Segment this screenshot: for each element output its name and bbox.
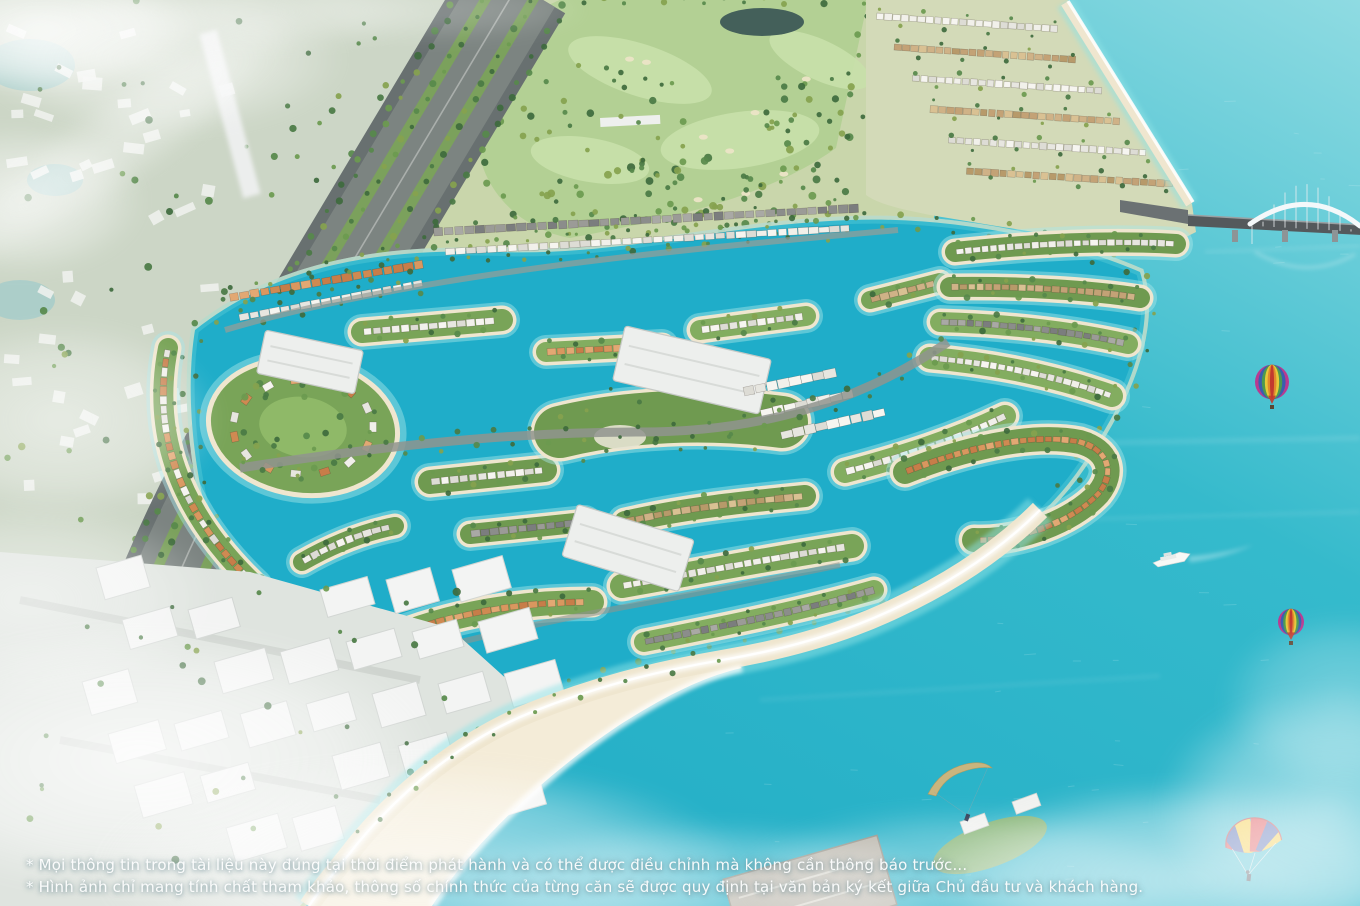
tree (535, 230, 538, 233)
villa-roof (641, 217, 651, 224)
disclaimer-line-2: * Hình ảnh chỉ mang tính chất tham khảo,… (26, 876, 1143, 898)
villa-roof (774, 495, 784, 503)
tree (456, 123, 463, 130)
tree (1048, 250, 1053, 255)
tree (741, 330, 747, 336)
villa-roof (952, 284, 959, 290)
tree (445, 136, 450, 141)
villa-roof (495, 224, 505, 232)
villa-roof (548, 599, 556, 606)
tree (718, 225, 723, 230)
tree (1056, 165, 1060, 169)
tree (742, 414, 746, 418)
villa-roof (382, 326, 391, 333)
tree (303, 432, 310, 439)
tree (665, 185, 670, 190)
villa-roof (967, 320, 974, 326)
villa-roof (1025, 325, 1033, 331)
villa-roof (965, 247, 972, 254)
tree (1126, 247, 1130, 251)
tree (404, 600, 409, 605)
tree (939, 42, 943, 46)
tree (878, 372, 882, 376)
tree (370, 130, 377, 137)
villa-roof (1141, 240, 1148, 246)
tree (609, 387, 613, 391)
tree (1047, 322, 1051, 326)
tree (622, 85, 628, 91)
villa-roof (1049, 173, 1056, 180)
villa-roof (978, 444, 986, 451)
villa-roof (1022, 368, 1030, 376)
tree (926, 446, 932, 452)
tree (192, 320, 198, 326)
tree (407, 269, 413, 275)
villa-roof (1011, 82, 1019, 88)
tree (1037, 135, 1042, 140)
villa-roof (788, 228, 798, 236)
villa-roof (1083, 333, 1090, 339)
villa-roof (663, 633, 673, 641)
tree (301, 394, 307, 400)
tree (806, 96, 813, 103)
villa-roof (1113, 118, 1120, 125)
tree (377, 335, 382, 340)
tree (666, 243, 670, 247)
villa-roof (1008, 22, 1016, 29)
villa-roof (1079, 116, 1087, 122)
tree (680, 118, 687, 125)
villa-roof (1014, 367, 1022, 375)
tree (508, 460, 514, 466)
tree (1028, 47, 1031, 50)
tree (331, 165, 336, 170)
villa-roof (434, 227, 443, 236)
bridge-pier (1282, 230, 1288, 242)
villa-roof (771, 555, 781, 562)
tree (711, 633, 715, 637)
tree (403, 451, 408, 456)
villa-roof (826, 545, 836, 553)
disclaimer: * Mọi thông tin trong tài liệu này đúng … (26, 854, 1143, 898)
villa-roof (1040, 242, 1048, 248)
villa-roof (1007, 243, 1014, 250)
villa-roof (734, 211, 744, 218)
tree (895, 38, 899, 42)
villa-roof (912, 75, 919, 81)
tree (481, 600, 487, 606)
tree (411, 641, 418, 648)
tree (1069, 388, 1075, 394)
villa-roof (997, 110, 1004, 117)
bunker (779, 171, 788, 176)
tree (623, 679, 627, 683)
tree (776, 75, 781, 80)
villa-roof (704, 213, 713, 220)
tree (454, 331, 460, 337)
tree (1152, 312, 1156, 316)
tree (491, 427, 497, 433)
villa-roof (632, 238, 642, 244)
villa-roof (478, 473, 487, 480)
tree (467, 313, 471, 317)
tree (685, 638, 690, 643)
villa-roof (1004, 81, 1011, 87)
tree (655, 173, 660, 178)
tree (781, 83, 787, 89)
tree (748, 176, 754, 182)
villa-roof (725, 563, 734, 571)
tree (770, 397, 775, 402)
tree (1019, 107, 1023, 111)
tree (1020, 318, 1024, 322)
tree (971, 149, 974, 152)
tree (546, 250, 550, 254)
villa-roof (691, 505, 700, 512)
tree (544, 79, 549, 84)
villa-roof (1107, 177, 1114, 183)
tree (970, 256, 976, 262)
tree (1020, 448, 1025, 453)
tree (777, 408, 782, 413)
tree (383, 121, 390, 128)
tree (801, 542, 806, 547)
villa-roof (501, 604, 509, 612)
tree (673, 206, 677, 210)
tree (624, 510, 630, 516)
tree (670, 628, 674, 632)
tree (352, 638, 357, 643)
villa-roof (985, 50, 993, 57)
villa-roof (765, 612, 774, 620)
tree (338, 181, 344, 187)
tree (338, 630, 342, 634)
tree (561, 98, 567, 104)
villa-roof (447, 321, 456, 328)
villa-roof (300, 280, 311, 289)
tree (805, 219, 810, 224)
tree (932, 359, 938, 365)
tree (993, 135, 998, 140)
villa-roof (959, 19, 967, 26)
tree (397, 135, 404, 142)
tree (363, 321, 368, 326)
tree (643, 631, 649, 637)
villa-roof (1018, 52, 1026, 59)
tree (978, 434, 985, 441)
tree (473, 442, 479, 448)
tree (533, 588, 538, 593)
tree (814, 162, 821, 169)
tree (723, 550, 729, 556)
tree (1139, 233, 1143, 237)
tree (1045, 447, 1051, 453)
villa-roof (1020, 438, 1027, 444)
villa-roof (911, 45, 919, 52)
tree (895, 285, 900, 290)
villa-roof (985, 284, 992, 290)
villa-roof (455, 226, 464, 235)
villa-roof (475, 225, 485, 233)
tree (340, 546, 346, 552)
tree (827, 119, 832, 124)
tree (842, 188, 849, 195)
tree (942, 27, 947, 32)
tree (277, 453, 281, 457)
tree (1143, 174, 1147, 178)
tree (762, 423, 767, 428)
tree (862, 1, 866, 5)
tree (1145, 349, 1149, 353)
tree (1045, 387, 1048, 390)
tree (1083, 280, 1087, 284)
tree (604, 171, 612, 179)
tree (991, 291, 995, 295)
villa-roof (250, 289, 260, 299)
tree (1098, 331, 1102, 335)
tree (814, 613, 817, 616)
villa-roof (1046, 113, 1054, 120)
tree (1144, 273, 1150, 279)
villa-roof (799, 550, 808, 557)
tree (347, 528, 352, 533)
villa-roof (942, 18, 950, 25)
tree (343, 234, 349, 240)
villa-roof (550, 242, 559, 248)
tree (410, 125, 414, 129)
villa-roof (921, 76, 928, 83)
villa-roof (1017, 324, 1024, 331)
tree (794, 165, 800, 171)
villa-roof (969, 49, 976, 56)
villa-roof (766, 209, 776, 216)
tree (561, 354, 566, 359)
tree (240, 429, 247, 436)
tree (854, 31, 861, 38)
villa-roof (957, 358, 964, 364)
tree (414, 69, 421, 76)
villa-roof (557, 348, 565, 355)
tree (1102, 155, 1106, 159)
villa-roof (1029, 112, 1037, 119)
tree (174, 194, 179, 199)
villa-roof (674, 235, 684, 241)
tree (979, 328, 986, 335)
villa-roof (1114, 148, 1122, 154)
tree (202, 481, 206, 485)
villa-roof (970, 79, 977, 86)
tree (510, 442, 515, 447)
villa-roof (528, 243, 538, 251)
villa-roof (476, 318, 485, 325)
tree (507, 711, 511, 715)
tree (546, 440, 552, 446)
tree (741, 196, 747, 202)
tree (825, 200, 831, 206)
tree (830, 77, 834, 81)
villa-roof (622, 238, 631, 245)
villa-roof (1094, 289, 1102, 296)
villa-roof (990, 140, 997, 147)
tree (354, 174, 358, 178)
tree (486, 258, 490, 262)
tree (753, 489, 759, 495)
tree (455, 603, 459, 607)
tree (1047, 513, 1051, 517)
tree (578, 695, 584, 701)
villa-roof (829, 226, 840, 233)
villa-roof (949, 319, 957, 325)
villa-roof (623, 581, 632, 589)
tree (637, 399, 642, 404)
villa-roof (710, 624, 718, 631)
tree (656, 136, 660, 140)
tree (1033, 180, 1036, 183)
villa-roof (538, 222, 547, 230)
villa-roof (1045, 437, 1052, 442)
tree (600, 423, 604, 427)
villa-roof (861, 410, 874, 422)
tree (769, 119, 774, 124)
villa-roof (663, 510, 671, 517)
villa-roof (1000, 22, 1008, 29)
tree (862, 595, 869, 602)
villa-roof (1002, 51, 1009, 58)
villa-roof (630, 217, 640, 225)
villa-roof (957, 138, 964, 144)
villa-roof (757, 318, 766, 326)
villa-roof (506, 470, 516, 477)
villa-roof (1074, 240, 1081, 246)
villa-roof (818, 547, 826, 554)
tree (844, 385, 851, 392)
tree (301, 554, 305, 558)
villa-roof (917, 16, 925, 22)
villa-roof (280, 284, 291, 293)
villa-roof (673, 214, 682, 223)
tree (506, 253, 510, 257)
tree (511, 533, 516, 538)
villa-roof (499, 526, 509, 534)
tree (727, 434, 732, 439)
villa-roof (715, 565, 724, 572)
villa-roof (1100, 336, 1108, 343)
villa-roof (969, 284, 975, 289)
tree (966, 420, 972, 426)
tree (440, 151, 447, 158)
tree (971, 459, 976, 464)
tree (377, 94, 384, 101)
villa-roof (1018, 284, 1025, 291)
villa-roof (469, 474, 477, 481)
scene-svg (0, 0, 1360, 906)
tree (913, 71, 918, 76)
tree (203, 537, 209, 543)
tree (389, 530, 393, 534)
tree (1009, 16, 1013, 20)
tree (818, 560, 822, 564)
villa-roof (776, 209, 785, 216)
villa-roof (576, 599, 584, 605)
tree (256, 590, 261, 595)
tree (716, 336, 720, 340)
tree (792, 113, 797, 118)
tree (752, 313, 758, 319)
villa-roof (331, 275, 342, 284)
villa-roof (840, 225, 849, 232)
villa-roof (958, 320, 966, 326)
tree (324, 260, 328, 264)
villa-roof (1116, 338, 1124, 346)
tree (581, 459, 585, 463)
tree (356, 285, 360, 289)
villa-roof (1041, 326, 1049, 333)
villa-roof (697, 567, 706, 575)
villa-roof (392, 325, 400, 333)
tree (336, 197, 343, 204)
tree (1072, 322, 1078, 328)
villa-roof (1017, 23, 1024, 29)
tree (1112, 454, 1117, 459)
tree (1004, 279, 1008, 283)
tree (654, 228, 658, 232)
villa-roof (445, 248, 455, 255)
tree (645, 190, 652, 197)
tree (455, 238, 459, 242)
tree (221, 297, 226, 302)
tree (109, 288, 113, 292)
tree (921, 9, 926, 14)
bunker (802, 76, 811, 81)
tree (897, 211, 904, 218)
villa-roof (1059, 55, 1067, 62)
villa-roof (778, 229, 786, 236)
tree (742, 0, 746, 4)
tree (471, 482, 477, 488)
tree (497, 479, 503, 485)
villa-roof (948, 137, 955, 143)
tree (494, 237, 499, 242)
tree (322, 430, 329, 437)
villa-roof (1038, 113, 1046, 120)
villa-roof (746, 616, 755, 624)
villa-roof (466, 319, 475, 327)
tree (238, 560, 244, 566)
tree (1090, 260, 1095, 265)
villa-roof (1052, 55, 1059, 61)
tree (428, 43, 434, 49)
tree (1123, 269, 1129, 275)
tree (1001, 76, 1005, 80)
tree (547, 338, 552, 343)
villa-roof (1050, 328, 1058, 334)
villa-roof (1011, 438, 1019, 445)
tree (1004, 59, 1009, 64)
tree (644, 664, 649, 669)
tree (483, 465, 487, 469)
villa-roof (1105, 468, 1111, 475)
villa-roof (724, 211, 734, 219)
tree (1020, 376, 1025, 381)
tree (177, 493, 181, 497)
tree (365, 191, 370, 196)
villa-roof (970, 446, 978, 454)
villa-roof (745, 211, 754, 218)
villa-roof (960, 284, 967, 289)
tree (916, 55, 921, 60)
tree (625, 246, 630, 251)
villa-roof (973, 247, 981, 253)
